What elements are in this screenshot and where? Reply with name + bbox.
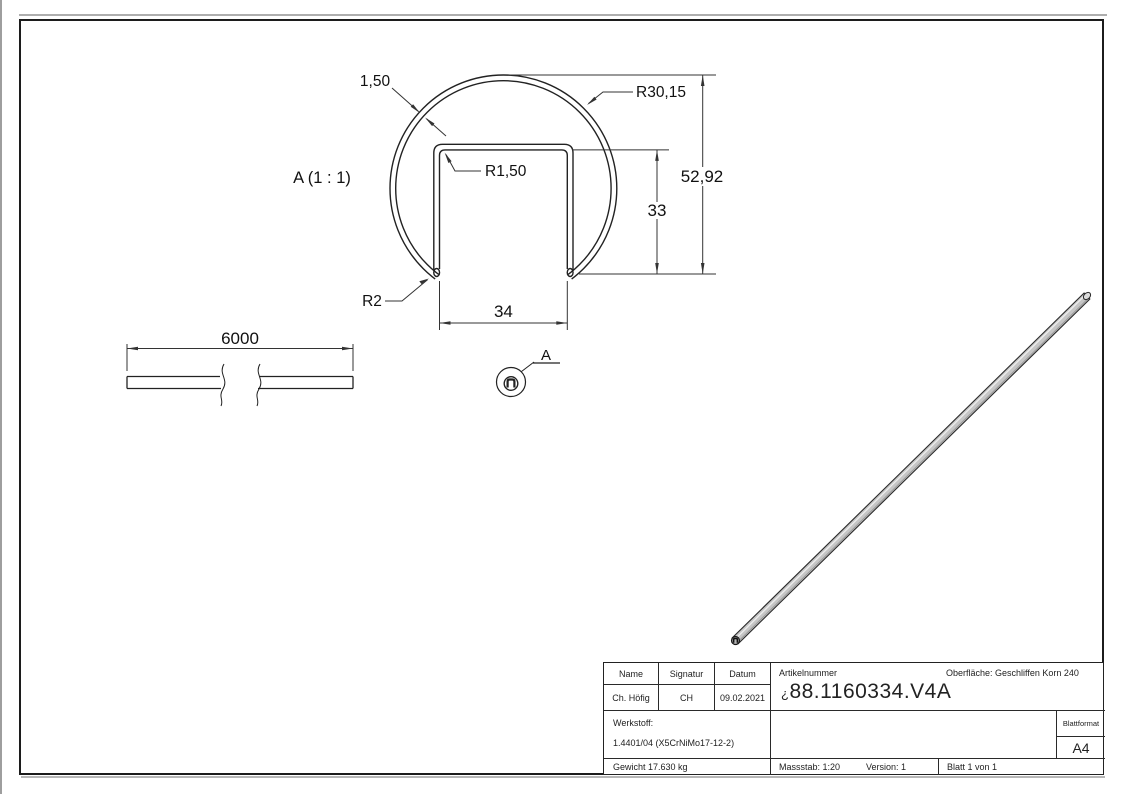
break-line-right [257, 364, 261, 406]
empty-cell [771, 711, 1057, 759]
massstab-cell: Massstab: 1:20 Version: 1 [771, 759, 939, 775]
massstab-text: Massstab: 1:20 [779, 762, 840, 772]
blattformat-label: Blattformat [1057, 711, 1105, 737]
profile-section-view [390, 75, 617, 313]
header-signatur: Signatur [659, 663, 715, 685]
werkstoff-cell: Werkstoff: 1.4401/04 (X5CrNiMo17-12-2) [604, 711, 771, 759]
break-line-left [221, 364, 225, 406]
header-datum: Datum [715, 663, 771, 685]
leader-leg-radius [385, 279, 429, 302]
slot-erase-wedge [428, 188, 578, 313]
iso-view-rod [732, 291, 1093, 645]
leader-inner-corner-text: R1,50 [485, 163, 527, 180]
dim-length [127, 344, 353, 371]
drawing-sheet: 52,92 33 34 1,50 [0, 0, 1123, 794]
rod-seam [737, 299, 1089, 643]
artikelnummer-number: 88.1160334.V4A [789, 680, 951, 703]
werkstoff-label: Werkstoff: [613, 718, 653, 728]
oberflaeche-text: Oberfläche: Geschliffen Korn 240 [946, 668, 1079, 678]
value-name: Ch. Höfig [604, 685, 659, 711]
artikelnummer-cell: Artikelnummer Oberfläche: Geschliffen Ko… [771, 663, 1105, 711]
leader-outer-radius [587, 92, 633, 105]
detail-view-label: A (1 : 1) [293, 169, 351, 187]
title-block: Name Signatur Datum Ch. Höfig CH 09.02.2… [603, 662, 1104, 775]
value-datum: 09.02.2021 [715, 685, 771, 711]
werkstoff-value: 1.4401/04 (X5CrNiMo17-12-2) [613, 738, 734, 748]
dim-slot-depth-text: 33 [648, 201, 667, 220]
leader-outer-radius-text: R30,15 [636, 84, 686, 101]
leader-inner-corner [445, 153, 481, 172]
version-text: Version: 1 [866, 762, 906, 772]
artikelnummer-value: ¿88.1160334.V4A [781, 680, 951, 704]
artikelnummer-label: Artikelnummer [779, 668, 837, 678]
detail-marker [497, 362, 561, 397]
rod-highlight [735, 294, 1086, 639]
length-view [127, 364, 353, 406]
blatt-cell: Blatt 1 von 1 [939, 759, 1105, 775]
dim-length-text: 6000 [221, 329, 259, 348]
dim-slot-width-text: 34 [494, 302, 513, 321]
gewicht-cell: Gewicht 17.630 kg [604, 759, 771, 775]
rod-body [732, 293, 1090, 644]
detail-marker-label: A [541, 347, 551, 364]
dim-overall-height-text: 52,92 [681, 167, 724, 186]
detail-marker-mini-slot [508, 380, 515, 388]
value-signatur: CH [659, 685, 715, 711]
leader-wall-thickness-text: 1,50 [360, 73, 391, 90]
leader-leg-radius-text: R2 [362, 293, 382, 310]
header-name: Name [604, 663, 659, 685]
blattformat-value: A4 [1057, 737, 1105, 759]
